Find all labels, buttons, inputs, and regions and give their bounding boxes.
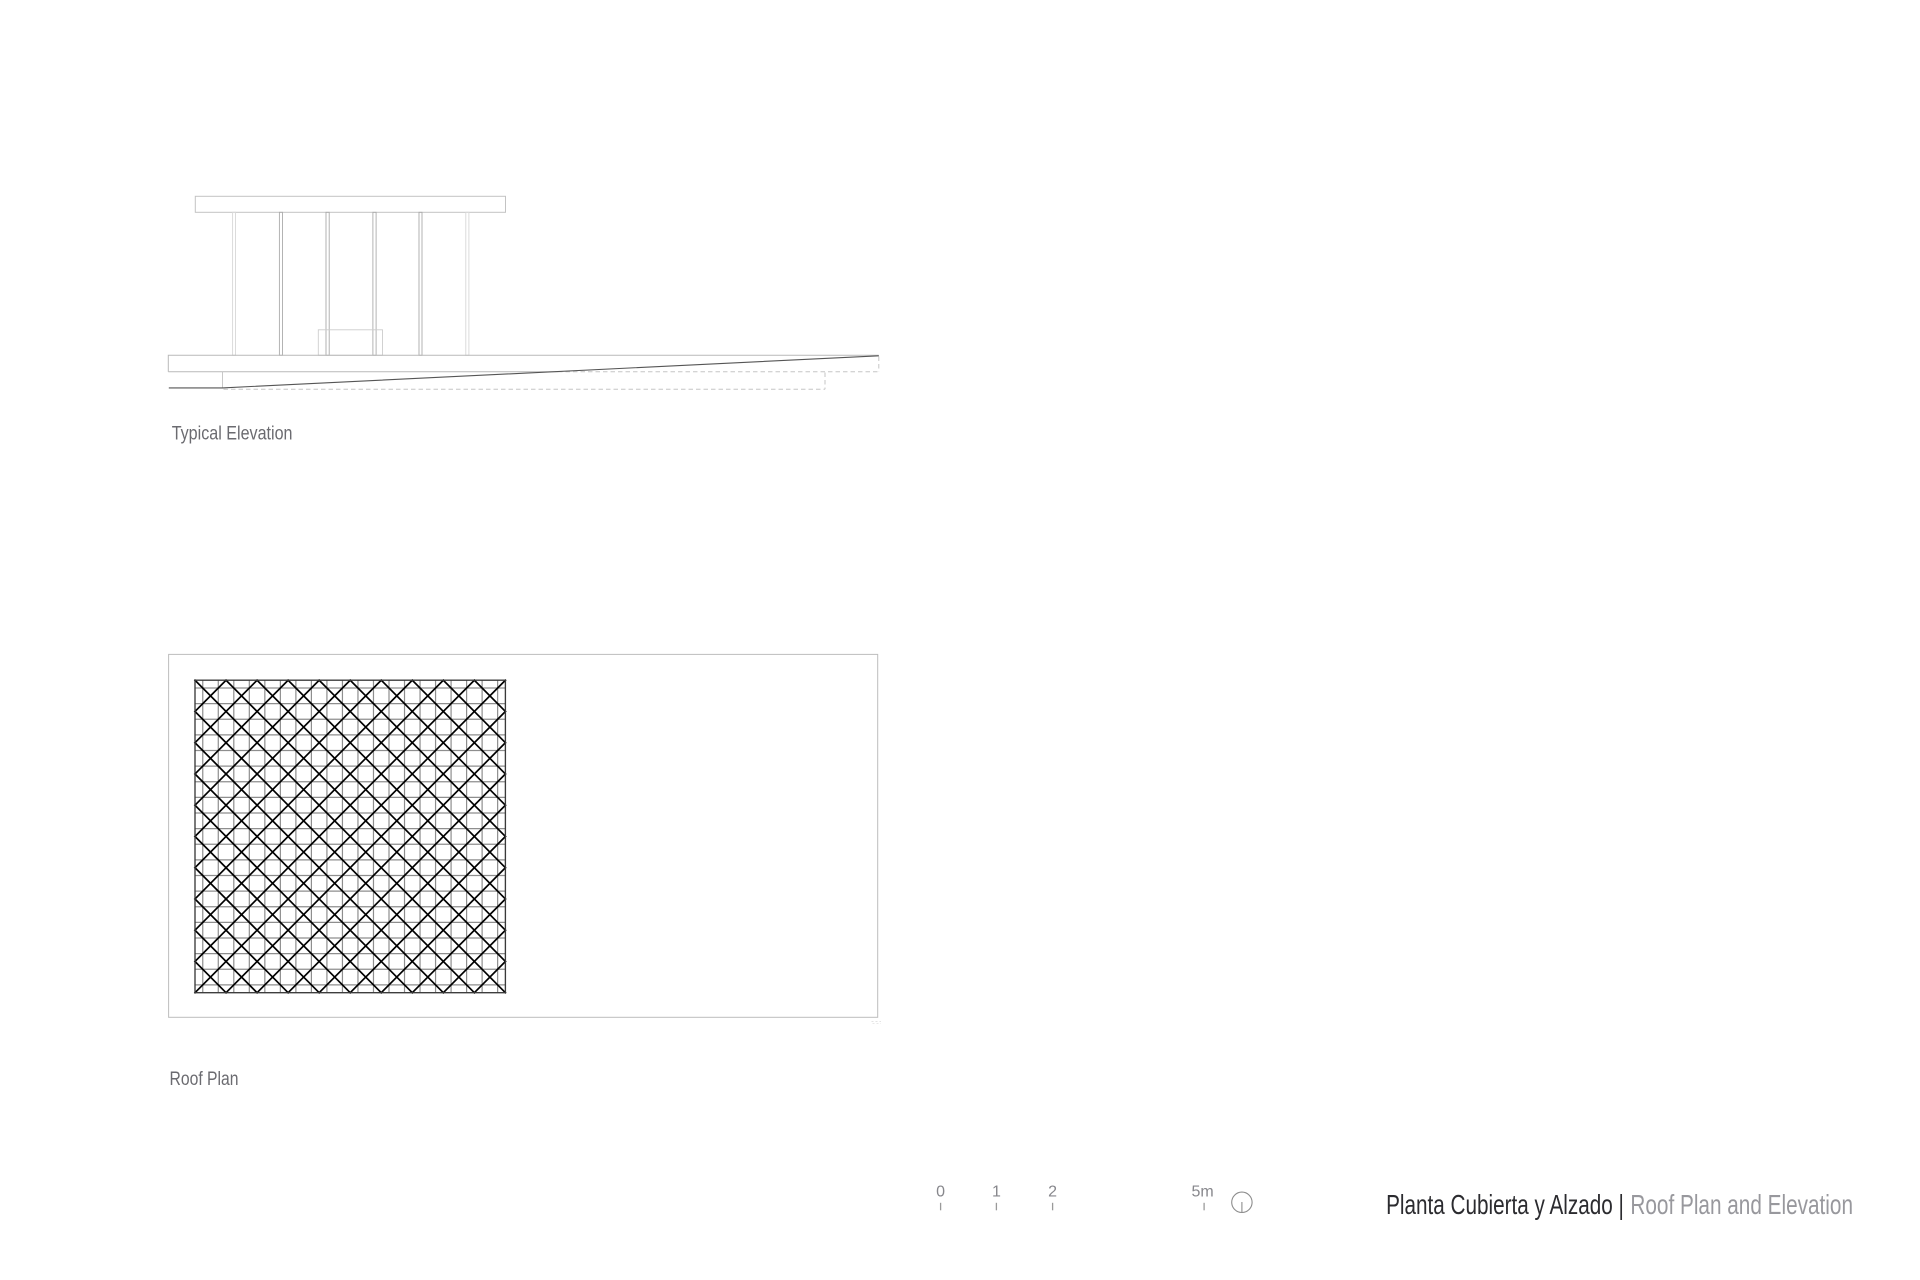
svg-text:Roof Plan and Elevation: Roof Plan and Elevation: [1630, 1189, 1853, 1220]
svg-text:5m: 5m: [1191, 1183, 1213, 1200]
svg-text:0: 0: [936, 1183, 945, 1200]
svg-text:1: 1: [992, 1183, 1001, 1200]
svg-text:2: 2: [1048, 1183, 1057, 1200]
svg-text:Planta Cubierta y Alzado |: Planta Cubierta y Alzado |: [1386, 1189, 1624, 1220]
svg-text:Typical Elevation: Typical Elevation: [172, 423, 293, 444]
svg-text:Roof Plan: Roof Plan: [170, 1069, 239, 1090]
